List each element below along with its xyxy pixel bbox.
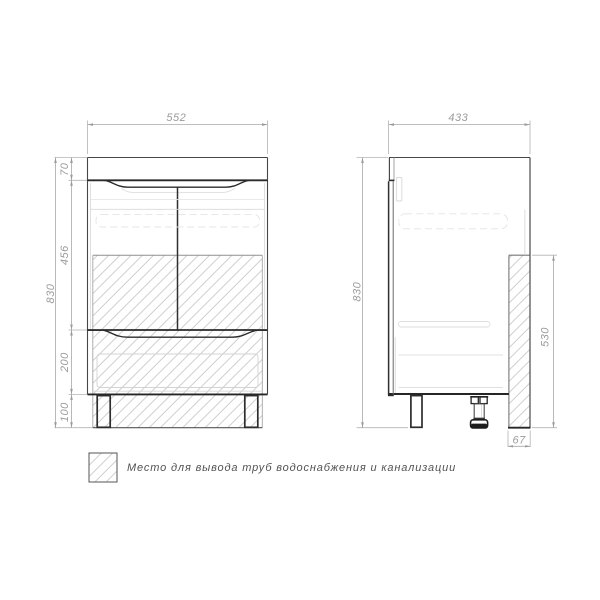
svg-text:456: 456 — [59, 245, 71, 265]
svg-text:433: 433 — [448, 112, 468, 124]
svg-text:200: 200 — [59, 352, 71, 373]
svg-text:830: 830 — [45, 283, 57, 303]
svg-text:830: 830 — [351, 281, 363, 301]
svg-text:70: 70 — [59, 162, 71, 176]
svg-text:530: 530 — [540, 327, 552, 347]
svg-text:67: 67 — [512, 434, 526, 446]
svg-text:100: 100 — [59, 402, 71, 422]
svg-text:Место для вывода труб водоснаб: Место для вывода труб водоснабжения и ка… — [127, 462, 456, 474]
svg-text:552: 552 — [166, 112, 186, 124]
